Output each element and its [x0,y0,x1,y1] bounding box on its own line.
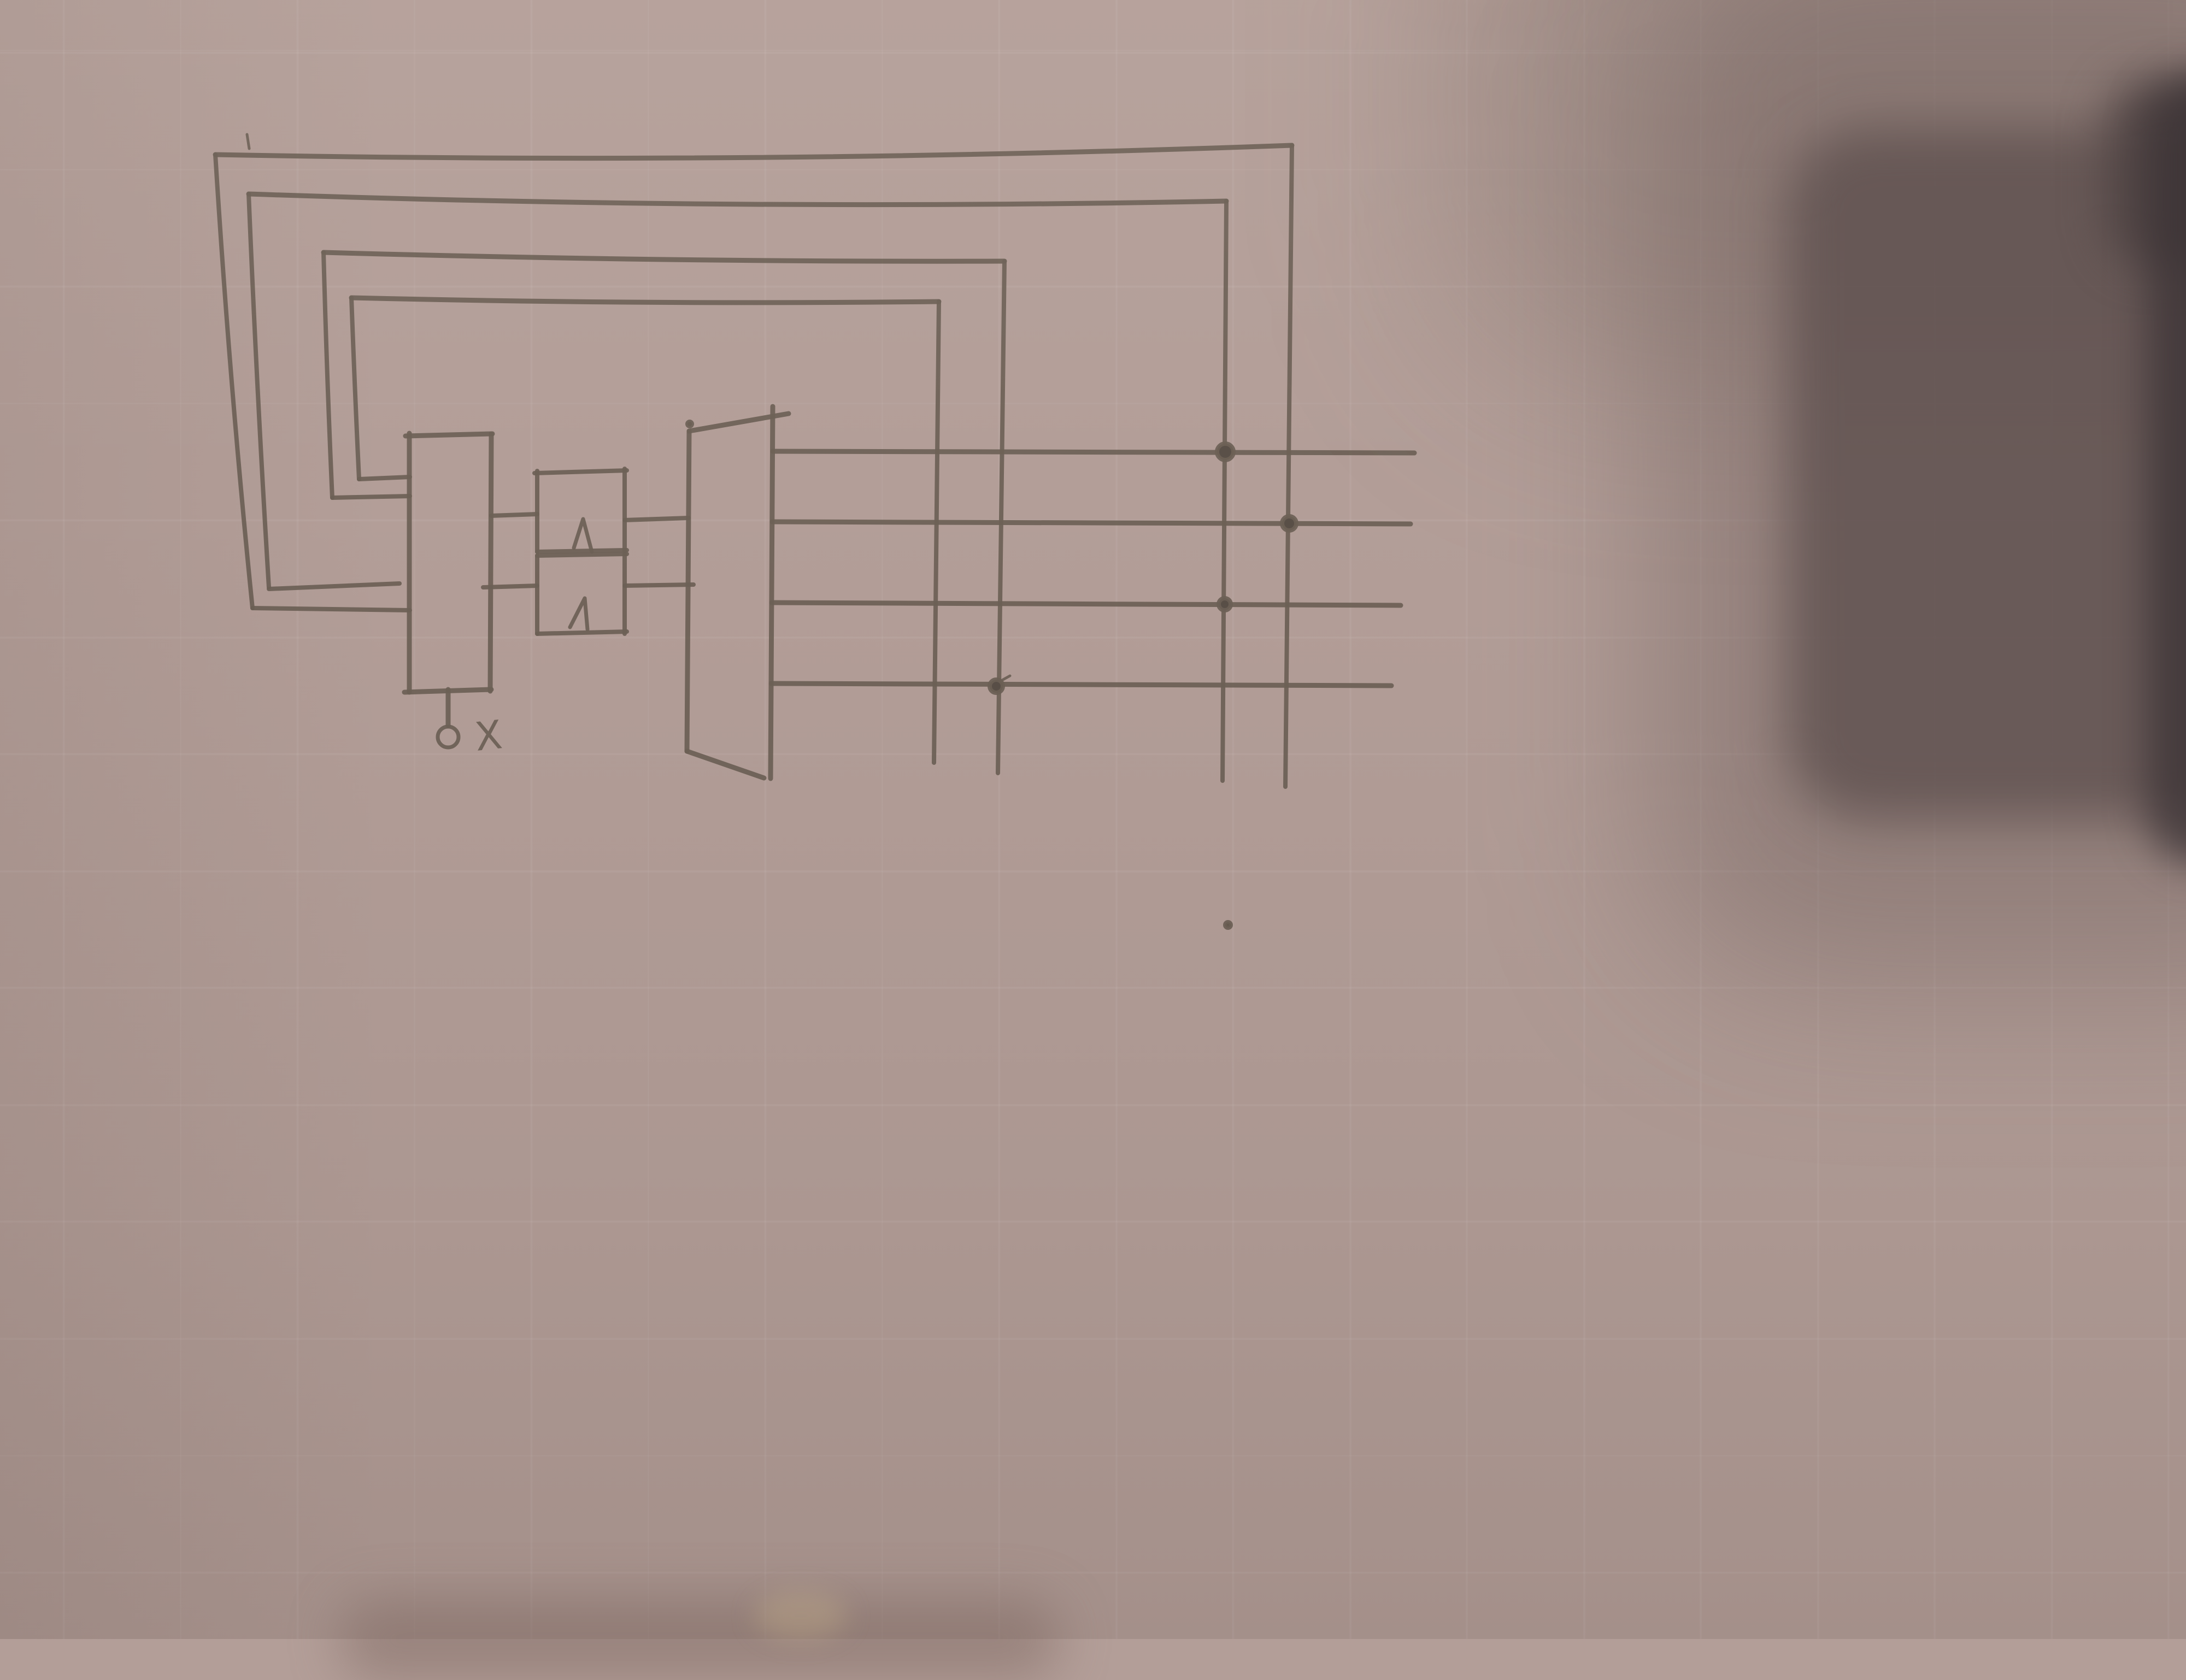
paper-bottom-shadow [339,1598,1060,1680]
photographed-paper-sketch: X [0,0,2186,1639]
phone-shadow-dark-strip [2147,74,2186,866]
paper-bottom-highlight [754,1591,847,1640]
